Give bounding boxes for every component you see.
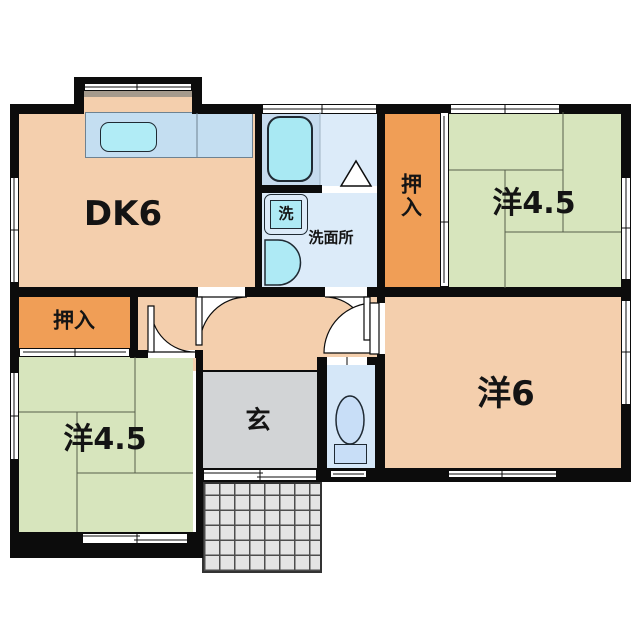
wall-top-left: [10, 104, 84, 114]
wall-bay-left: [74, 77, 84, 114]
window-bottom-yo45: [82, 533, 188, 544]
wall-yo6-left-lower: [375, 357, 385, 468]
wall-hall-left: [130, 287, 138, 352]
doorway-washroom: [325, 287, 367, 297]
wall-toilet-left: [317, 357, 327, 468]
doorway-dk: [198, 287, 245, 297]
doorway-yo6: [377, 303, 385, 354]
porch-tiles: [202, 482, 322, 573]
label-dk: DK6: [84, 197, 162, 231]
label-genkan: 玄: [245, 408, 270, 433]
bathroom-door-sill: [322, 186, 377, 193]
wall-dk-bath: [255, 104, 262, 297]
window-bottom-toilet: [330, 470, 367, 478]
bathtub: [267, 116, 313, 182]
window-right-yo6: [621, 300, 631, 405]
closet-tr-sliding-door: [440, 112, 449, 287]
label-yo45-top-right: 洋4.5: [492, 189, 575, 219]
closet-bl-sliding-door: [19, 348, 130, 357]
wall-left: [10, 104, 19, 558]
toilet-tank: [334, 444, 367, 464]
kitchen-bay-shelf: [84, 91, 192, 97]
window-left-yo45: [10, 372, 19, 460]
window-bottom-yo6: [448, 470, 557, 478]
label-yo45-bottom-left: 洋4.5: [63, 425, 146, 455]
window-left-dk: [10, 177, 19, 283]
wall-bay-right: [192, 77, 202, 114]
toilet-door: [327, 357, 367, 365]
window-bay: [84, 83, 192, 91]
label-closet-bottom-left: 押入: [53, 311, 95, 332]
label-yo6: 洋6: [477, 377, 535, 411]
kitchen-sink: [100, 122, 157, 152]
floor-plan-screenshot: DK6洋4.5洋6洋4.5押入押入玄洗面所洗: [0, 0, 640, 640]
label-closet-top-right: 押入: [400, 173, 421, 219]
label-washer: 洗: [278, 207, 293, 222]
doorway-yo45: [148, 350, 195, 358]
floor-plan: DK6洋4.5洋6洋4.5押入押入玄洗面所洗: [0, 0, 640, 640]
wall-bath-closet: [377, 104, 385, 297]
window-right-yo45: [621, 177, 631, 280]
window-top-yo45: [450, 104, 560, 114]
wall-bath-washroom: [255, 185, 322, 193]
wall-mid-band: [10, 287, 631, 297]
wall-porch-side: [196, 352, 203, 558]
label-washroom: 洗面所: [308, 231, 353, 246]
entrance-door: [203, 469, 317, 481]
window-top-bathroom: [262, 104, 377, 114]
